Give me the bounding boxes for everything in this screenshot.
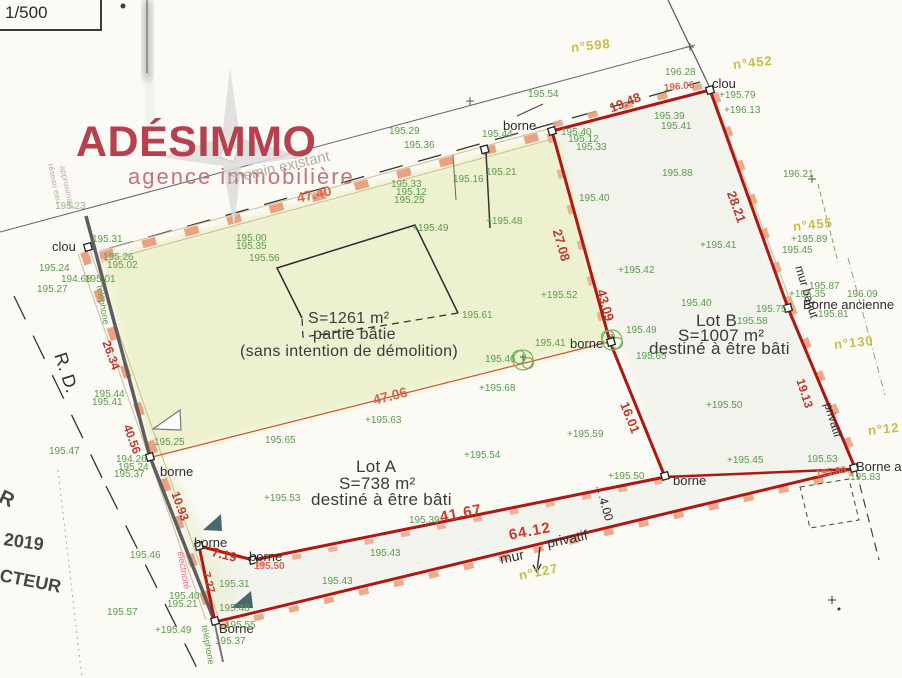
elevation-label: 195.23 xyxy=(55,202,86,212)
elevation-label: 195.35 xyxy=(236,242,267,252)
elevation-label: +195.41 xyxy=(700,241,736,251)
dimension-label: 26.34 xyxy=(100,339,122,371)
elevation-label: +195.42 xyxy=(618,266,654,276)
survey-plan-page: 1/500 ADÉSIMMO agence immobilière S=1261… xyxy=(0,0,902,678)
parcel-number-label: n°130 xyxy=(833,334,874,351)
feature-label: privatif xyxy=(822,401,844,438)
dimension-label: 195.50 xyxy=(254,562,285,572)
elevation-label: 195.55 xyxy=(225,621,256,631)
elevation-label: 195.41 xyxy=(661,122,692,132)
elevation-label: 195.46 xyxy=(130,551,161,561)
stamp-text: 2019 xyxy=(3,530,45,553)
parcel-number-label: n°127 xyxy=(518,562,560,582)
elevation-label: +196.13 xyxy=(724,106,760,116)
feature-label: mur xyxy=(499,547,526,566)
dimension-label: 195.80 xyxy=(815,466,847,480)
feature-label: borne xyxy=(160,465,193,478)
elevation-label: 195.21 xyxy=(486,168,517,178)
elevation-label: 195.33 xyxy=(576,143,607,153)
dimension-label: 28.21 xyxy=(725,189,748,224)
dimension-label: 43.09 xyxy=(595,288,616,323)
elevation-label: 195.37 xyxy=(215,637,246,647)
elevation-label: 195.40 xyxy=(579,194,610,204)
elevation-label: +195.50 xyxy=(706,401,742,411)
elevation-label: téléphone xyxy=(95,285,111,326)
elevation-label: 195.01 xyxy=(85,275,116,285)
elevation-label: 195.58 xyxy=(737,317,768,327)
elevation-label: +195.53 xyxy=(264,494,300,504)
elevation-label: 196.28 xyxy=(665,68,696,78)
elevation-label: 195.65 xyxy=(636,352,667,362)
elevation-label: 195.49 xyxy=(626,326,657,336)
dimension-label: 10.93 xyxy=(169,490,191,522)
dimension-label: 47.06 xyxy=(371,385,408,407)
elevation-label: 196.21 xyxy=(783,170,814,180)
feature-label: clou xyxy=(52,240,76,253)
elevation-label: +195.52 xyxy=(541,291,577,301)
elevation-label: 195.40 xyxy=(681,299,712,309)
elevation-label: 195.24 xyxy=(39,264,70,274)
feature-label: privatif xyxy=(546,528,589,550)
elevation-label: 195.54 xyxy=(528,90,559,100)
elevation-label: 195.81 xyxy=(818,310,849,320)
elevation-label: 195.16 xyxy=(453,175,484,185)
parcel-number-label: n°455 xyxy=(792,216,833,233)
feature-label: borne xyxy=(673,474,706,487)
elevation-label: +195.35 xyxy=(789,290,825,300)
dimension-label: 7.27 xyxy=(200,571,216,595)
parcel-number-label: n°12 xyxy=(867,421,900,437)
elevation-label: 195.83 xyxy=(850,473,881,483)
dimension-label: 47.40 xyxy=(295,183,332,205)
elevation-label: +195.49 xyxy=(155,626,191,636)
dimension-label: 7.19 xyxy=(210,545,238,564)
elevation-label: 195.45 xyxy=(782,246,813,256)
elevation-label: +195.59 xyxy=(567,430,603,440)
elevation-label: 195.29 xyxy=(389,127,420,137)
parcel-number-label: n°598 xyxy=(570,37,611,54)
elevation-label: 195.31 xyxy=(219,580,250,590)
elevation-label: 195.27 xyxy=(37,285,68,295)
feature-label: borne xyxy=(570,337,603,350)
elevation-label: +195.54 xyxy=(464,451,500,461)
elevation-label: 195.57 xyxy=(107,608,138,618)
elevation-label: 195.44 xyxy=(482,130,513,140)
elevation-label: 195.21 xyxy=(167,600,198,610)
feature-label: clou xyxy=(712,77,736,90)
elevation-label: 195.61 xyxy=(462,311,493,321)
elevation-label: +195.50 xyxy=(608,472,644,482)
elevation-label: 195.53 xyxy=(807,455,838,465)
elevation-label: 195.37 xyxy=(114,470,145,480)
elevation-label: 195.39 xyxy=(409,516,440,526)
elevation-label: 195.46 xyxy=(485,355,516,365)
utility-label: électricité xyxy=(176,551,191,590)
elevation-label: 196.09 xyxy=(847,290,878,300)
elevation-label: 195.75 xyxy=(756,305,787,315)
elevation-label: +195.89 xyxy=(791,235,827,245)
stamp-text: R xyxy=(0,487,17,511)
elevation-label: +195.68 xyxy=(479,384,515,394)
elevation-label: 195.43 xyxy=(322,577,353,587)
note-label: chemin existant xyxy=(226,149,331,187)
elevation-label: +195.63 xyxy=(365,416,401,426)
elevation-label: 195.48 xyxy=(219,604,250,614)
elevation-label: +195.48 xyxy=(486,217,522,227)
dimension-label: 19.48 xyxy=(608,90,643,114)
elevation-label: 195.65 xyxy=(265,436,296,446)
elevation-label: 195.25 xyxy=(394,196,425,206)
dimension-label: 19.13 xyxy=(794,377,815,409)
annotation-layer: clouclouborneborneborneborneborneborneBo… xyxy=(0,0,902,678)
elevation-label: 195.31 xyxy=(92,235,123,245)
elevation-label: +195.49 xyxy=(412,224,448,234)
elevation-label: 195.43 xyxy=(370,549,401,559)
elevation-label: 195.47 xyxy=(49,447,80,457)
elevation-label: 195.41 xyxy=(92,398,123,408)
elevation-label: 195.36 xyxy=(404,141,435,151)
feature-label: 4.00 xyxy=(597,496,615,522)
dimension-label: 27.08 xyxy=(551,228,572,263)
dimension-label: 41.67 xyxy=(439,502,484,525)
elevation-label: +195.45 xyxy=(727,456,763,466)
elevation-label: téléphone xyxy=(200,625,216,666)
dimension-label: 16.01 xyxy=(618,400,642,435)
parcel-number-label: n°452 xyxy=(732,54,773,71)
dimension-label: 40.56 xyxy=(121,423,143,455)
feature-label: R. D. xyxy=(51,350,81,395)
elevation-label: 195.41 xyxy=(535,339,566,349)
elevation-label: 195.25 xyxy=(154,438,185,448)
elevation-label: +195.79 xyxy=(719,91,755,101)
stamp-text: CTEUR xyxy=(0,566,63,595)
dimension-label: 196.06 xyxy=(663,81,694,94)
elevation-label: 195.02 xyxy=(107,261,138,271)
elevation-label: 195.56 xyxy=(249,254,280,264)
elevation-label: 195.88 xyxy=(662,169,693,179)
